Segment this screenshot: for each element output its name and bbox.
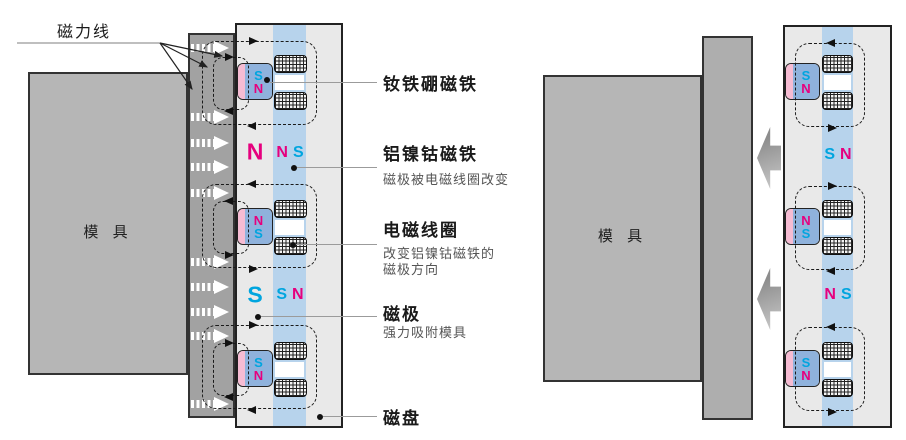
magnetic-clamping-diagram: 模 具 SN NS SN N S NS SN <box>0 0 906 440</box>
right-pole-shoe-bar <box>702 36 753 420</box>
callout-leader <box>297 167 377 168</box>
callout-alnico-magnet: 铝镍钴磁铁 <box>383 145 478 165</box>
flux-arrow <box>247 406 256 414</box>
magnet-pink-strip <box>786 209 793 244</box>
callout-disk: 磁盘 <box>383 409 421 429</box>
flux-arrow <box>826 323 835 331</box>
pole-letter-big: S <box>247 284 262 307</box>
force-arrow <box>191 305 233 319</box>
field-lines-pointer-arrows <box>0 0 260 110</box>
callout-leader <box>261 316 377 317</box>
callout-leader <box>296 244 377 245</box>
flux-loop-internal <box>795 43 865 127</box>
flux-loop-internal <box>795 327 865 411</box>
callout-coil-subtitle: 改变铝镍钴磁铁的 磁极方向 <box>383 246 495 278</box>
callout-pole: 磁极 <box>383 305 421 325</box>
flux-arrow <box>249 321 258 329</box>
flux-arrow <box>247 180 256 188</box>
flux-arrow <box>225 251 234 259</box>
right-mold: 模 具 <box>543 75 702 382</box>
flux-arrow <box>828 408 837 416</box>
left-mold-label: 模 具 <box>30 221 186 242</box>
right-mold-label: 模 具 <box>545 225 700 246</box>
flux-arrow <box>826 267 835 275</box>
flux-arrow <box>828 124 837 132</box>
alnico-pole-pair: SN <box>276 287 303 303</box>
callout-pole-subtitle: 强力吸附模具 <box>383 325 467 341</box>
alnico-pole-pair: NS <box>276 145 303 161</box>
force-arrow <box>191 160 233 174</box>
flux-arrow <box>224 393 233 401</box>
magnet-pink-strip <box>786 351 793 386</box>
flux-arrow <box>224 197 233 205</box>
callout-leader <box>323 416 377 417</box>
force-arrow <box>191 280 233 294</box>
callout-dot <box>291 165 297 171</box>
callout-ndfeb-magnet: 钕铁硼磁铁 <box>383 75 478 95</box>
flux-loop-inner <box>213 201 249 254</box>
callout-leader <box>270 82 377 83</box>
callout-alnico-subtitle: 磁极被电磁线圈改变 <box>383 172 509 188</box>
left-mold: 模 具 <box>28 72 188 375</box>
flux-arrow <box>249 265 258 273</box>
callout-dot <box>290 242 296 248</box>
callout-coil: 电磁线圈 <box>383 221 459 241</box>
callout-dot <box>255 314 261 320</box>
flux-arrow <box>828 182 837 190</box>
release-arrow <box>757 127 781 189</box>
flux-arrow <box>225 339 234 347</box>
pole-letter-big: N <box>247 141 264 164</box>
force-arrow <box>191 136 233 150</box>
alnico-pole-pair: SN <box>824 147 851 163</box>
flux-loop-inner <box>213 343 249 396</box>
callout-dot <box>317 414 323 420</box>
flux-arrow <box>826 39 835 47</box>
magnet-pink-strip <box>786 64 793 99</box>
flux-arrow <box>247 122 256 130</box>
alnico-pole-pair: NS <box>824 287 851 303</box>
flux-loop-internal <box>795 186 865 270</box>
release-arrow <box>757 268 781 330</box>
